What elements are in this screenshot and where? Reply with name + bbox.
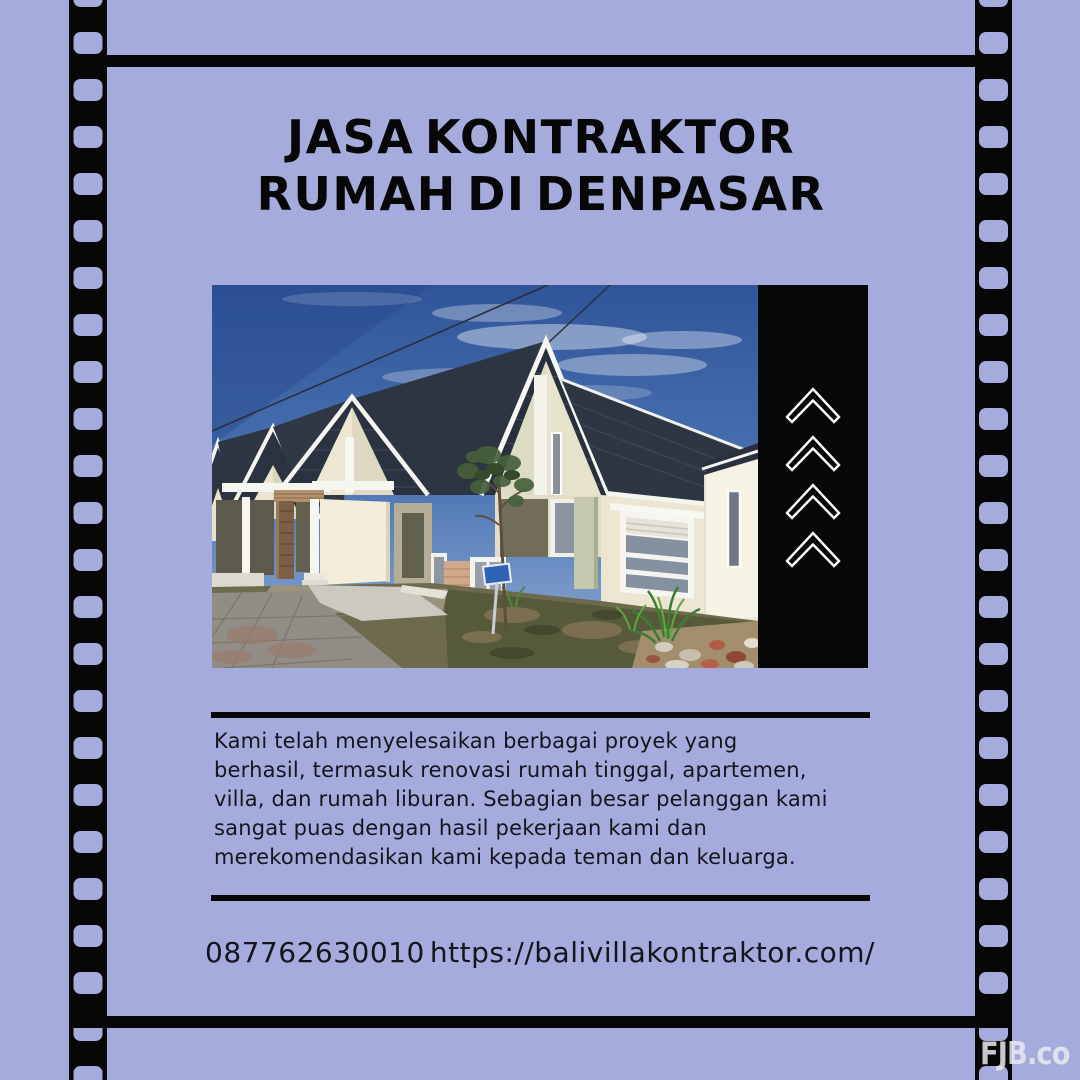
page-title: JASA KONTRAKTOR RUMAH DI DENPASAR	[107, 109, 975, 223]
website-url: https://balivillakontraktor.com/	[430, 936, 875, 969]
watermark: FJB.co	[980, 1036, 1070, 1072]
description-line: Kami telah menyelesaikan berbagai proyek…	[214, 727, 864, 756]
film-frame-bar-bottom	[69, 1016, 1012, 1028]
description-line: sangat puas dengan hasil pekerjaan kami …	[214, 814, 864, 843]
film-strip-left	[69, 0, 107, 1080]
chevron-up-icon	[783, 528, 843, 568]
description-line: villa, dan rumah liburan. Sebagian besar…	[214, 785, 864, 814]
flyer-page: JASA KONTRAKTOR RUMAH DI DENPASAR	[0, 0, 1080, 1080]
divider-top	[211, 712, 870, 718]
description-line: merekomendasikan kami kepada teman dan k…	[214, 843, 864, 872]
chevron-up-icon	[783, 480, 843, 520]
divider-bottom	[211, 895, 870, 901]
phone-number: 087762630010	[205, 936, 425, 969]
description-text: Kami telah menyelesaikan berbagai proyek…	[214, 727, 864, 872]
contact-row: 087762630010 https://balivillakontraktor…	[205, 936, 875, 969]
film-strip-right	[975, 0, 1012, 1080]
title-line-2: RUMAH DI DENPASAR	[107, 166, 975, 223]
houses-photo	[212, 285, 758, 668]
chevron-up-icon	[783, 384, 843, 424]
film-frame-bar-top	[69, 55, 1012, 67]
chevron-up-icon	[783, 432, 843, 472]
chevron-panel	[758, 285, 868, 668]
description-line: berhasil, termasuk renovasi rumah tingga…	[214, 756, 864, 785]
title-line-1: JASA KONTRAKTOR	[107, 109, 975, 166]
